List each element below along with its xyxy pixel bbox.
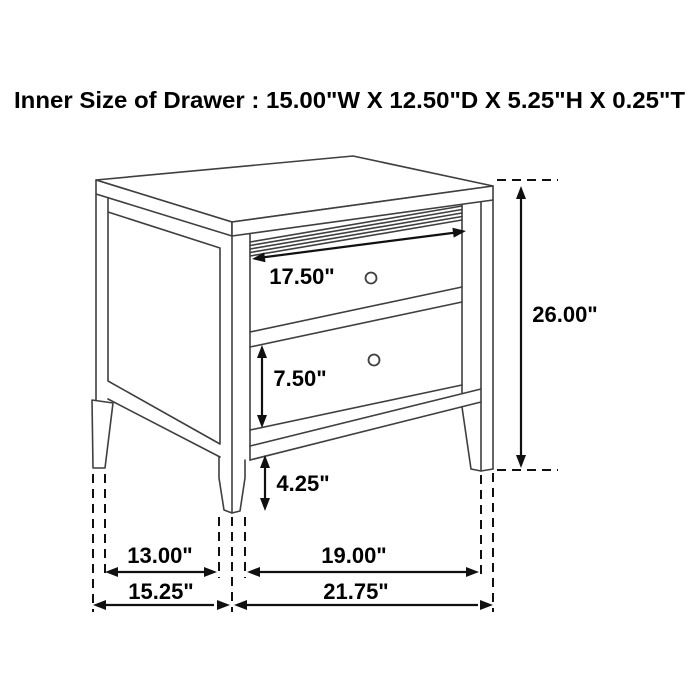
nightstand-top <box>96 156 493 236</box>
nightstand-dimension-diagram: Inner Size of Drawer : 15.00"W X 12.50"D… <box>0 0 700 700</box>
diagram-page: Inner Size of Drawer : 15.00"W X 12.50"D… <box>0 0 700 700</box>
nightstand-legs <box>92 400 493 513</box>
rear-left-leg <box>92 400 113 468</box>
label-drawer-face-height: 7.50" <box>273 366 326 391</box>
dimension-annotations: 17.50" 26.00" 7.50" 4.25" 13.00" 19.00" … <box>93 180 598 612</box>
label-front-inner-width: 19.00" <box>321 543 386 568</box>
label-overall-height: 26.00" <box>532 302 597 327</box>
label-floor-clearance: 4.25" <box>276 471 329 496</box>
label-drawer-front-width: 17.50" <box>269 264 334 289</box>
bottom-drawer-knob-icon <box>369 355 380 366</box>
label-side-inner-depth: 13.00" <box>127 543 192 568</box>
nightstand-front <box>232 200 493 513</box>
label-overall-depth: 15.25" <box>128 579 193 604</box>
nightstand-drawing <box>92 156 493 513</box>
side-panel-frame <box>96 194 220 457</box>
front-right-leg <box>462 407 493 471</box>
front-stile-lines <box>250 200 493 471</box>
label-overall-width: 21.75" <box>323 579 388 604</box>
page-title: Inner Size of Drawer : 15.00"W X 12.50"D… <box>14 87 686 113</box>
top-drawer-knob-icon <box>366 273 377 284</box>
nightstand-left-side <box>96 194 220 457</box>
